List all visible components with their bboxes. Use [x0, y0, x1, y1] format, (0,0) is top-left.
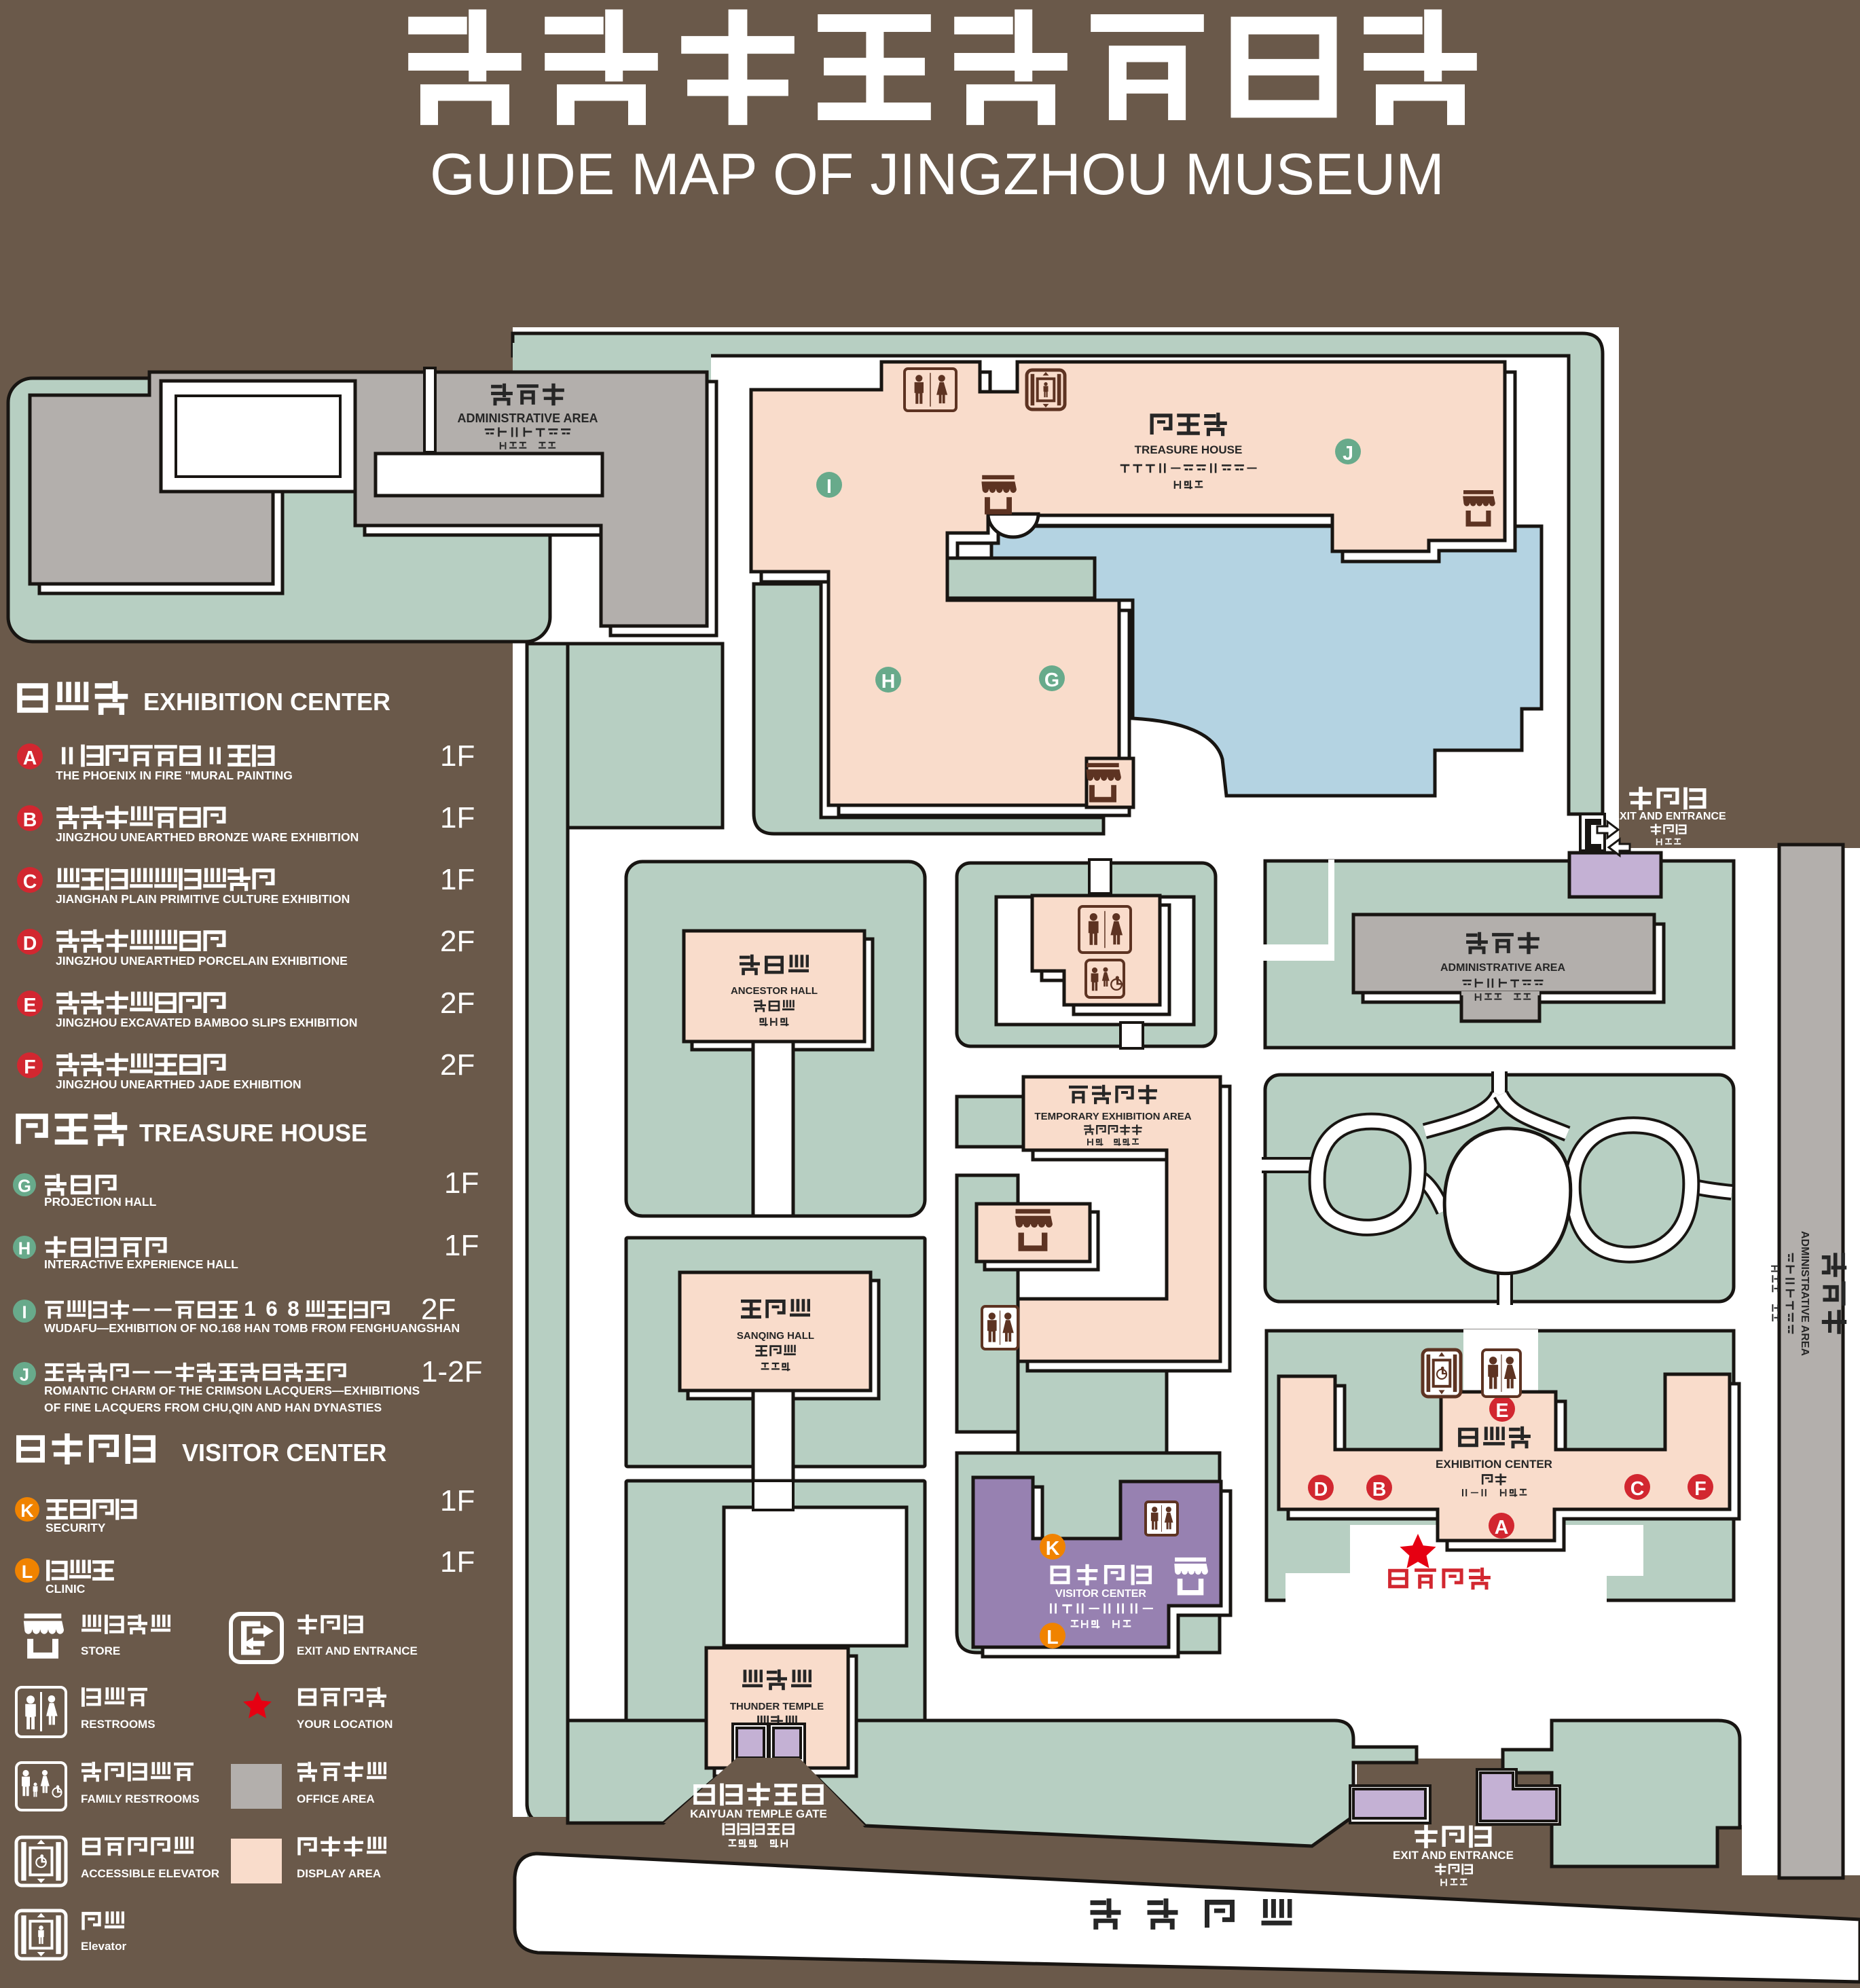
svg-text:OF FINE LACQUERS FROM CHU,QIN: OF FINE LACQUERS FROM CHU,QIN AND HAN DY…	[44, 1401, 382, 1414]
svg-text:K: K	[1046, 1538, 1060, 1560]
svg-text:GUIDE MAP OF JINGZHOU MUSEUM: GUIDE MAP OF JINGZHOU MUSEUM	[430, 142, 1444, 207]
svg-text:EXHIBITION CENTER: EXHIBITION CENTER	[143, 688, 390, 716]
svg-text:C: C	[1630, 1478, 1645, 1500]
svg-text:2F: 2F	[440, 925, 475, 958]
svg-text:2F: 2F	[421, 1293, 456, 1326]
svg-text:EXIT AND ENTRANCE: EXIT AND ENTRANCE	[1393, 1849, 1514, 1862]
svg-text:RESTROOMS: RESTROOMS	[81, 1718, 156, 1731]
svg-text:VISITOR CENTER: VISITOR CENTER	[182, 1439, 386, 1467]
svg-text:1-2F: 1-2F	[421, 1355, 482, 1388]
svg-text:L: L	[22, 1562, 33, 1582]
svg-text:ROMANTIC CHARM OF THE CRIMSON: ROMANTIC CHARM OF THE CRIMSON LACQUERS—E…	[44, 1384, 420, 1397]
svg-text:I: I	[826, 476, 832, 498]
svg-text:6: 6	[266, 1296, 278, 1321]
svg-text:1F: 1F	[444, 1166, 479, 1200]
svg-text:J: J	[1343, 443, 1353, 464]
svg-text:OFFICE AREA: OFFICE AREA	[297, 1792, 375, 1805]
svg-text:E: E	[23, 995, 36, 1016]
svg-text:1F: 1F	[444, 1229, 479, 1262]
svg-text:I: I	[22, 1304, 26, 1323]
svg-text:K: K	[20, 1501, 34, 1521]
svg-text:TEMPORARY EXHIBITION AREA: TEMPORARY EXHIBITION AREA	[1034, 1111, 1191, 1122]
svg-text:ANCESTOR HALL: ANCESTOR HALL	[731, 985, 818, 997]
svg-text:F: F	[1694, 1478, 1706, 1500]
svg-text:STORE: STORE	[81, 1644, 120, 1657]
svg-text:2F: 2F	[440, 1048, 475, 1082]
svg-text:ADMINISTRATIVE AREA: ADMINISTRATIVE AREA	[1799, 1231, 1810, 1356]
svg-text:D: D	[1314, 1479, 1328, 1501]
svg-text:C: C	[23, 871, 37, 893]
svg-text:2F: 2F	[440, 987, 475, 1020]
svg-text:THE PHOENIX IN FIRE "MURAL PAI: THE PHOENIX IN FIRE "MURAL PAINTING	[56, 769, 293, 782]
svg-text:H: H	[18, 1240, 31, 1259]
svg-text:EXHIBITION CENTER: EXHIBITION CENTER	[1436, 1458, 1552, 1471]
svg-text:DISPLAY AREA: DISPLAY AREA	[297, 1867, 381, 1880]
svg-text:TREASURE HOUSE: TREASURE HOUSE	[1135, 443, 1243, 456]
svg-text:JIANGHAN PLAIN PRIMITIVE CULTU: JIANGHAN PLAIN PRIMITIVE CULTURE EXHIBIT…	[56, 892, 350, 906]
svg-text:B: B	[23, 809, 37, 831]
svg-text:THUNDER TEMPLE: THUNDER TEMPLE	[730, 1701, 824, 1712]
svg-text:1F: 1F	[440, 863, 475, 896]
svg-text:J: J	[20, 1366, 29, 1385]
svg-text:CLINIC: CLINIC	[45, 1582, 86, 1596]
svg-text:D: D	[23, 933, 37, 955]
svg-text:1F: 1F	[440, 1484, 475, 1517]
svg-text:H: H	[881, 671, 896, 693]
svg-text:1F: 1F	[440, 739, 475, 773]
svg-text:F: F	[24, 1056, 35, 1078]
svg-text:Elevator: Elevator	[81, 1940, 126, 1953]
svg-text:JINGZHOU EXCAVATED BAMBOO SLIP: JINGZHOU EXCAVATED BAMBOO SLIPS EXHIBITI…	[56, 1016, 357, 1029]
svg-text:SECURITY: SECURITY	[45, 1521, 106, 1534]
svg-text:SANQING HALL: SANQING HALL	[737, 1330, 814, 1342]
svg-text:JINGZHOU UNEARTHED PORCELAIN E: JINGZHOU UNEARTHED PORCELAIN EXHIBITIONE	[56, 954, 348, 968]
svg-text:1: 1	[244, 1296, 256, 1321]
svg-text:EXIT AND ENTRANCE: EXIT AND ENTRANCE	[297, 1644, 418, 1657]
svg-text:B: B	[1372, 1479, 1387, 1501]
svg-text:FAMILY RESTROOMS: FAMILY RESTROOMS	[81, 1792, 200, 1805]
svg-text:G: G	[1044, 669, 1059, 691]
svg-text:PROJECTION HALL: PROJECTION HALL	[44, 1195, 157, 1209]
svg-text:WUDAFU—EXHIBITION OF NO.168 HA: WUDAFU—EXHIBITION OF NO.168 HAN TOMB FRO…	[44, 1321, 460, 1335]
svg-text:G: G	[18, 1177, 31, 1196]
svg-text:1F: 1F	[440, 1545, 475, 1579]
svg-text:EXIT AND ENTRANCE: EXIT AND ENTRANCE	[1612, 811, 1726, 822]
svg-text:VISITOR CENTER: VISITOR CENTER	[1055, 1588, 1146, 1600]
svg-text:YOUR LOCATION: YOUR LOCATION	[297, 1718, 393, 1731]
svg-text:A: A	[1495, 1517, 1509, 1539]
svg-text:L: L	[1046, 1627, 1058, 1649]
svg-text:INTERACTIVE EXPERIENCE HALL: INTERACTIVE EXPERIENCE HALL	[44, 1257, 238, 1271]
svg-text:ADMINISTRATIVE AREA: ADMINISTRATIVE AREA	[1440, 962, 1565, 974]
svg-text:A: A	[23, 748, 37, 769]
svg-text:JINGZHOU UNEARTHED JADE EXHIBI: JINGZHOU UNEARTHED JADE EXHIBITION	[56, 1078, 302, 1091]
svg-text:KAIYUAN TEMPLE GATE: KAIYUAN TEMPLE GATE	[690, 1807, 827, 1820]
svg-text:E: E	[1495, 1400, 1508, 1422]
svg-text:1F: 1F	[440, 801, 475, 834]
svg-text:ACCESSIBLE ELEVATOR: ACCESSIBLE ELEVATOR	[81, 1867, 219, 1880]
svg-text:8: 8	[287, 1296, 299, 1321]
svg-text:ADMINISTRATIVE AREA: ADMINISTRATIVE AREA	[458, 411, 598, 425]
svg-text:TREASURE HOUSE: TREASURE HOUSE	[139, 1119, 367, 1147]
svg-text:JINGZHOU UNEARTHED BRONZE WARE: JINGZHOU UNEARTHED BRONZE WARE EXHIBITIO…	[56, 830, 359, 844]
